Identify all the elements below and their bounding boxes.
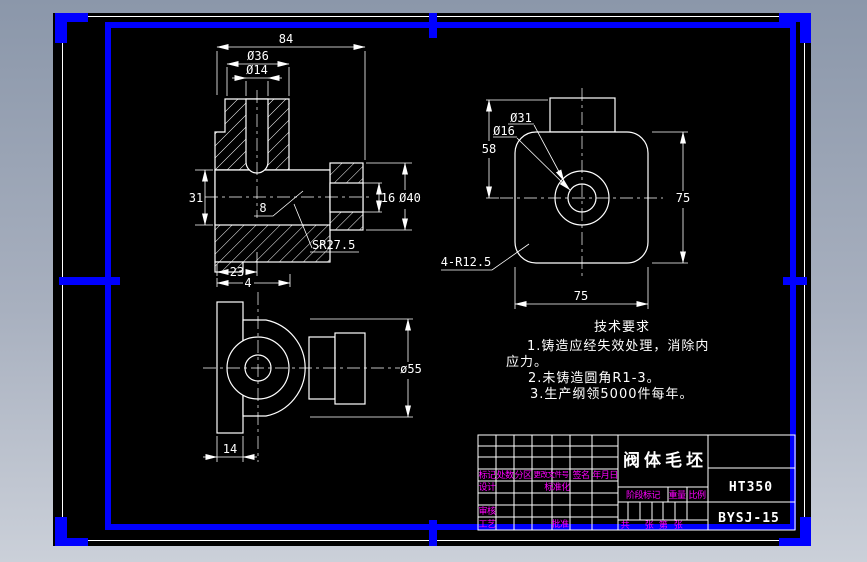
approve-label: 批准 bbox=[551, 518, 569, 530]
grip-bottom-left[interactable] bbox=[55, 517, 88, 546]
scale-label: 比例 bbox=[688, 489, 706, 501]
dim-14: 14 bbox=[223, 442, 237, 456]
dim-16: 16 bbox=[381, 191, 395, 205]
top-boss bbox=[550, 98, 615, 132]
side-view: 58 Ø31 Ø16 75 75 4-R12.5 bbox=[441, 88, 691, 309]
design-label: 设计 bbox=[478, 481, 496, 493]
sheet-total-unit: 张 bbox=[645, 520, 654, 531]
side-bore bbox=[330, 183, 363, 212]
tech-req-line2: 应力。 bbox=[506, 354, 548, 370]
drawing-svg: 84 Ø36 Ø14 31 8 16 bbox=[53, 13, 811, 546]
dim-d55: ø55 bbox=[400, 362, 422, 376]
dim-d31: Ø31 bbox=[510, 111, 532, 125]
dim-d14: Ø14 bbox=[246, 63, 268, 77]
dim-d16: Ø16 bbox=[493, 124, 515, 138]
material: HT350 bbox=[729, 480, 773, 495]
rev-count-label: 处数 bbox=[496, 469, 514, 481]
rev-change-file-label: 更改文件号 bbox=[534, 469, 569, 479]
standardization-label: 标准化 bbox=[544, 481, 570, 493]
rev-mark-label: 标记 bbox=[478, 469, 496, 481]
dim-sr275: SR27.5 bbox=[312, 238, 355, 252]
dim-d40: Ø40 bbox=[399, 191, 421, 205]
dim-8: 8 bbox=[259, 201, 266, 215]
rev-zone-label: 分区 bbox=[514, 470, 532, 481]
title-block: 标记 处数 分区 更改文件号 签名 年月日 设计 标准化 审核 工艺 批准 阶段… bbox=[478, 435, 795, 531]
drawing-canvas: 84 Ø36 Ø14 31 8 16 bbox=[53, 13, 811, 546]
sheet-no-label: 第 bbox=[659, 519, 668, 531]
dim-31: 31 bbox=[189, 191, 203, 205]
dim-84: 84 bbox=[279, 32, 293, 46]
drawing-number: BYSJ-15 bbox=[718, 511, 780, 526]
vertical-hole bbox=[246, 99, 268, 173]
grip-bottom-mid[interactable] bbox=[429, 520, 437, 546]
grip-top-left[interactable] bbox=[55, 13, 88, 43]
weight-label: 重量 bbox=[668, 489, 686, 501]
rev-signature-label: 签名 bbox=[572, 469, 589, 481]
dim-4: 4 bbox=[244, 276, 251, 290]
tech-req-line3: 2.未铸造圆角R1-3。 bbox=[528, 370, 661, 386]
dim-corner-r: 4-R12.5 bbox=[441, 255, 492, 269]
grip-right-mid[interactable] bbox=[783, 277, 807, 285]
sheet-no-unit: 张 bbox=[674, 520, 683, 531]
cylinder-step-2 bbox=[335, 333, 365, 404]
part-name: 阀体毛坯 bbox=[623, 450, 707, 471]
bottom-view: ø55 14 bbox=[203, 292, 422, 462]
tech-req-title: 技术要求 bbox=[594, 320, 650, 335]
spherical-cavity-band bbox=[215, 170, 330, 225]
dim-58: 58 bbox=[482, 142, 496, 156]
dim-75-right: 75 bbox=[676, 191, 690, 205]
tech-requirements: 技术要求 1.铸造应经失效处理，消除内 应力。 2.未铸造圆角R1-3。 3.生… bbox=[506, 320, 709, 402]
sheet-total-label: 共 bbox=[621, 520, 630, 531]
tech-req-line1: 1.铸造应经失效处理，消除内 bbox=[527, 338, 709, 354]
grip-left-mid[interactable] bbox=[59, 277, 120, 285]
check-label: 审核 bbox=[478, 505, 496, 517]
process-label: 工艺 bbox=[478, 519, 496, 530]
cad-viewport: 84 Ø36 Ø14 31 8 16 bbox=[0, 0, 867, 562]
stage-mark-label: 阶段标记 bbox=[626, 489, 661, 501]
dim-d36: Ø36 bbox=[247, 49, 269, 63]
tech-req-line4: 3.生产纲领5000件每年。 bbox=[530, 386, 694, 402]
grip-top-mid[interactable] bbox=[429, 13, 437, 38]
dim-75-bottom: 75 bbox=[574, 289, 588, 303]
dim-23: 23 bbox=[230, 265, 244, 279]
rev-date-label: 年月日 bbox=[592, 469, 618, 481]
front-section-view: 84 Ø36 Ø14 31 8 16 bbox=[189, 32, 421, 290]
